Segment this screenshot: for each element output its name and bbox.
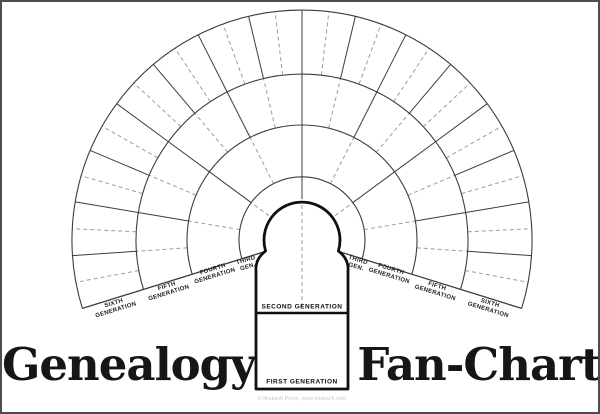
ring-divider-sixth-generation	[446, 126, 502, 158]
ring-divider-fifth-generation	[149, 175, 196, 195]
ring-divider-fifth-generation	[376, 113, 409, 152]
ring-divider-sixth-generation	[359, 24, 381, 84]
center-arch-outline	[256, 202, 348, 389]
ring-divider-sixth-generation	[198, 35, 227, 92]
ring-divider-fifth-generation	[415, 213, 465, 222]
ring-divider-sixth-generation	[341, 16, 356, 78]
ring-divider-fifth-generation	[227, 92, 250, 137]
ring-divider-sixth-generation	[409, 64, 450, 113]
ring-divider-fourth-generation	[209, 172, 251, 203]
ring-divider-sixth-generation	[275, 12, 283, 76]
ring-divider-fifth-generation	[395, 142, 436, 172]
ring-divider-sixth-generation	[461, 176, 522, 194]
ring-divider-sixth-generation	[76, 271, 139, 283]
ring-divider-fourth-generation	[250, 137, 274, 183]
ring-divider-third-generation	[335, 203, 353, 216]
ring-divider-sixth-generation	[223, 24, 245, 84]
ring-divider-sixth-generation	[102, 126, 158, 158]
ring-divider-sixth-generation	[72, 229, 136, 232]
title-fan-chart: Fan-Chart	[357, 339, 600, 391]
footer-credit: © Misbach Press, www.misbach.com	[207, 396, 397, 402]
ring-divider-sixth-generation	[249, 16, 264, 78]
ring-divider-sixth-generation	[423, 83, 470, 127]
ring-divider-fourth-generation	[353, 172, 395, 203]
ring-divider-fifth-generation	[264, 79, 276, 129]
ring-divider-sixth-generation	[377, 35, 406, 92]
first-generation-label: FIRST GENERATION	[266, 379, 337, 386]
ring-divider-sixth-generation	[436, 104, 488, 142]
ring-divider-fifth-generation	[136, 248, 187, 252]
fan-chart-page: SIXTH GENERATION FIFTH GENERATION FOURTH…	[0, 0, 600, 414]
ring-divider-sixth-generation	[73, 251, 137, 255]
ring-divider-fifth-generation	[354, 92, 377, 137]
ring-divider-sixth-generation	[466, 202, 529, 213]
ring-divider-sixth-generation	[465, 271, 528, 283]
ring-divider-sixth-generation	[134, 83, 181, 127]
ring-divider-sixth-generation	[321, 12, 329, 76]
ring-divider-fourth-generation	[364, 221, 415, 230]
ring-divider-fifth-generation	[417, 248, 468, 252]
ring-divider-sixth-generation	[117, 104, 169, 142]
title-genealogy: Genealogy	[2, 339, 246, 391]
ring-divider-sixth-generation	[468, 251, 532, 255]
ring-divider-sixth-generation	[75, 202, 138, 213]
ring-divider-sixth-generation	[81, 176, 142, 194]
ring-divider-sixth-generation	[90, 150, 149, 175]
ring-divider-sixth-generation	[153, 64, 194, 113]
ring-divider-fifth-generation	[195, 113, 228, 152]
ring-divider-fifth-generation	[329, 79, 341, 129]
ring-divider-sixth-generation	[175, 48, 210, 101]
ring-divider-sixth-generation	[468, 229, 532, 232]
ring-divider-sixth-generation	[455, 150, 514, 175]
ring-divider-fourth-generation	[189, 221, 240, 230]
second-generation-label: SECOND GENERATION	[262, 304, 343, 311]
ring-divider-fourth-generation	[330, 137, 354, 183]
ring-divider-fifth-generation	[138, 213, 188, 222]
ring-divider-third-generation	[251, 203, 269, 216]
ring-divider-fifth-generation	[408, 175, 455, 195]
ring-divider-sixth-generation	[394, 48, 429, 101]
ring-divider-fifth-generation	[168, 142, 209, 172]
